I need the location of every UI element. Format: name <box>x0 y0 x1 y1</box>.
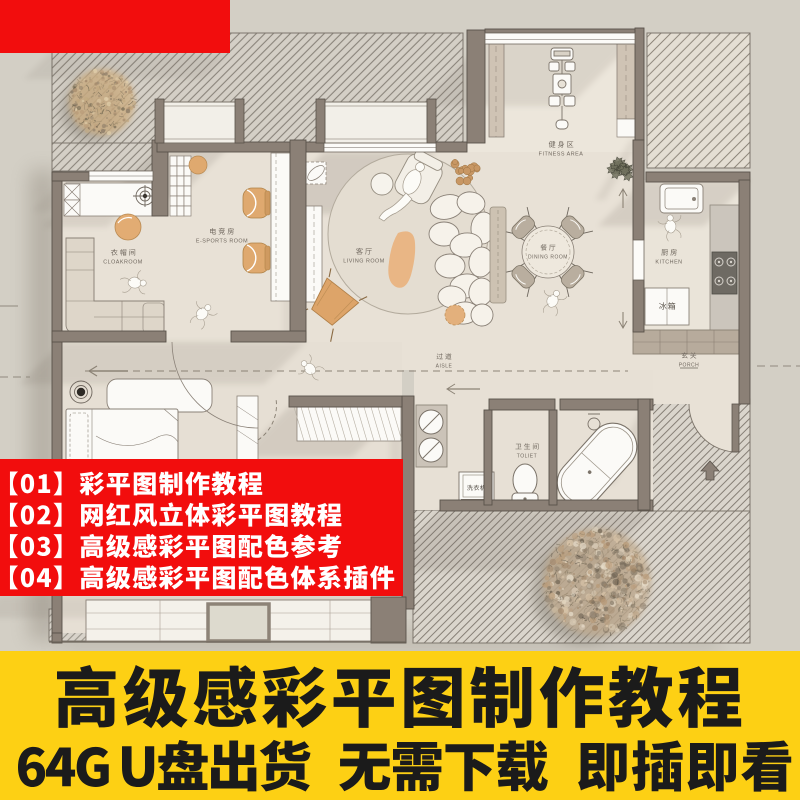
svg-text:DINING ROOM: DINING ROOM <box>528 255 568 261</box>
svg-text:PORCH: PORCH <box>679 363 700 369</box>
svg-text:FITNESS AREA: FITNESS AREA <box>539 152 584 158</box>
svg-text:AISLE: AISLE <box>436 364 453 370</box>
svg-text:TOLIET: TOLIET <box>517 454 537 460</box>
svg-text:KITCHEN: KITCHEN <box>655 260 682 266</box>
svg-text:LIVING ROOM: LIVING ROOM <box>343 259 384 265</box>
svg-text:E-SPORTS ROOM: E-SPORTS ROOM <box>196 239 248 245</box>
svg-text:CLOAKROOM: CLOAKROOM <box>103 260 143 266</box>
